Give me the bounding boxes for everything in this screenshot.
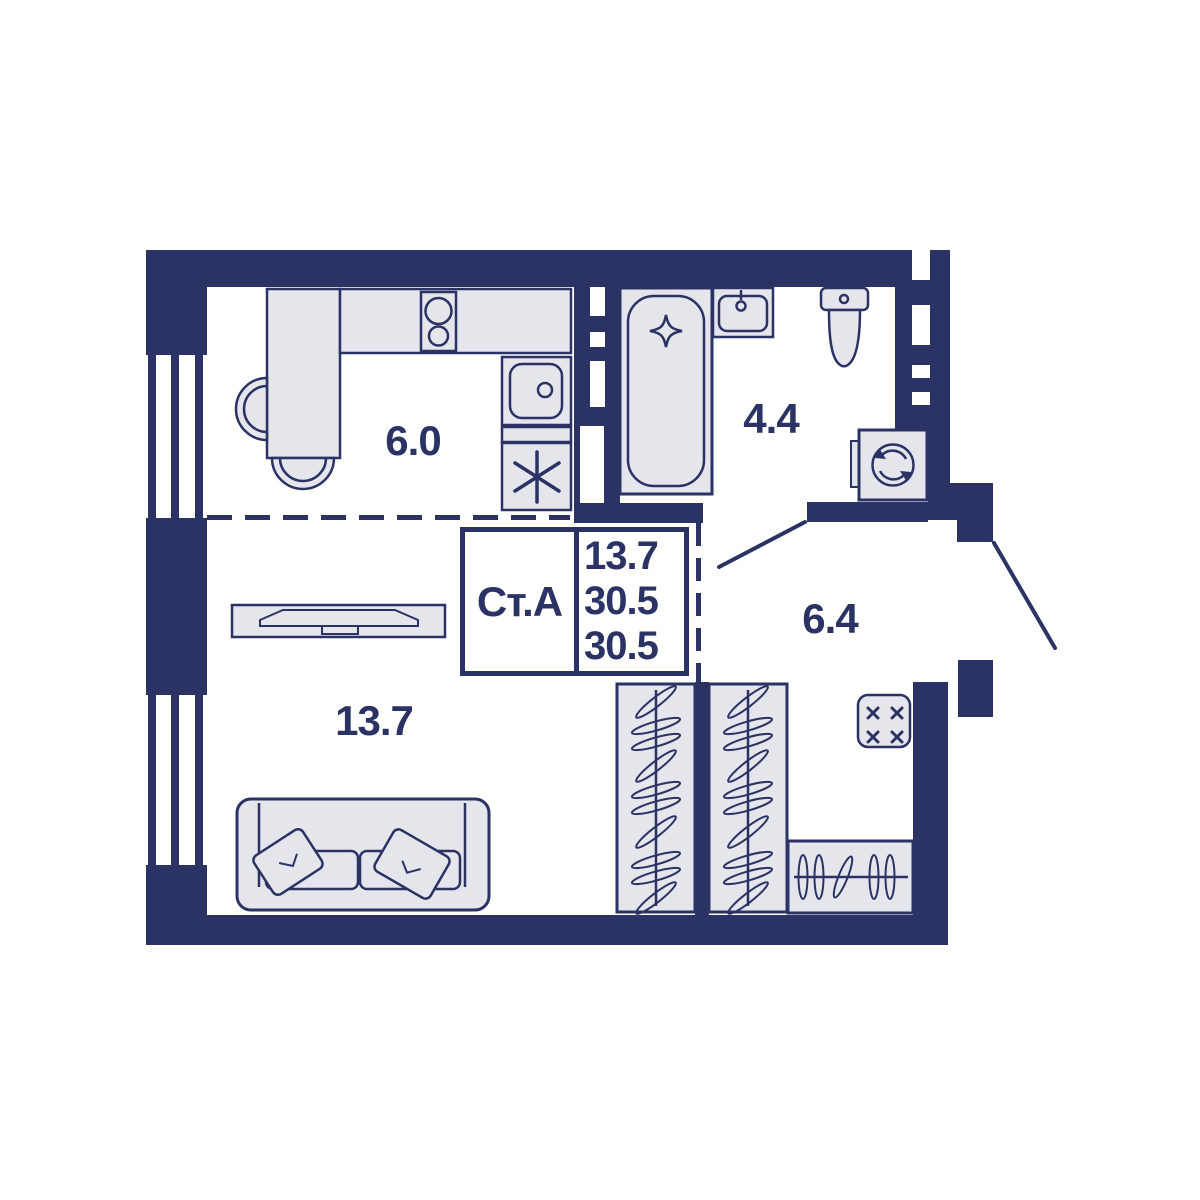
entrance-door-leaf bbox=[994, 543, 1055, 648]
wardrobe-low-icon bbox=[788, 841, 913, 913]
unit-info-card: Ст.А 13.7 30.5 30.5 bbox=[460, 527, 689, 676]
living-area-label: 13.7 bbox=[335, 697, 413, 745]
unit-area-total-reduced: 30.5 bbox=[584, 624, 684, 669]
floor-plan: 6.0 4.4 6.4 13.7 Ст.А 13.7 30.5 30.5 bbox=[0, 0, 1200, 1200]
kitchen-area-label: 6.0 bbox=[385, 417, 440, 465]
bathroom-door-leaf bbox=[719, 522, 805, 567]
refrigerator-icon bbox=[502, 443, 571, 510]
unit-area-total: 30.5 bbox=[584, 579, 684, 624]
stove-icon bbox=[421, 292, 456, 351]
electrical-panel-icon bbox=[858, 695, 910, 747]
washbasin-icon bbox=[713, 288, 773, 337]
wardrobe-icon bbox=[709, 683, 787, 917]
chair-icon bbox=[272, 458, 334, 489]
tv-stand-icon bbox=[232, 605, 445, 637]
hallway-area-label: 6.4 bbox=[802, 595, 857, 643]
wardrobe-icon bbox=[617, 683, 695, 917]
bathroom-area-label: 4.4 bbox=[743, 395, 798, 443]
sofa-icon bbox=[237, 799, 489, 910]
kitchen-sink bbox=[502, 357, 571, 425]
unit-areas: 13.7 30.5 30.5 bbox=[579, 532, 684, 671]
unit-area-living: 13.7 bbox=[584, 534, 684, 579]
toilet-icon bbox=[821, 288, 868, 366]
dining-table bbox=[267, 289, 340, 458]
counter-strip bbox=[502, 427, 571, 442]
bathtub-icon bbox=[620, 288, 712, 494]
chair-icon bbox=[236, 378, 267, 440]
unit-name: Ст.А bbox=[465, 532, 579, 671]
washing-machine-icon bbox=[851, 430, 927, 500]
